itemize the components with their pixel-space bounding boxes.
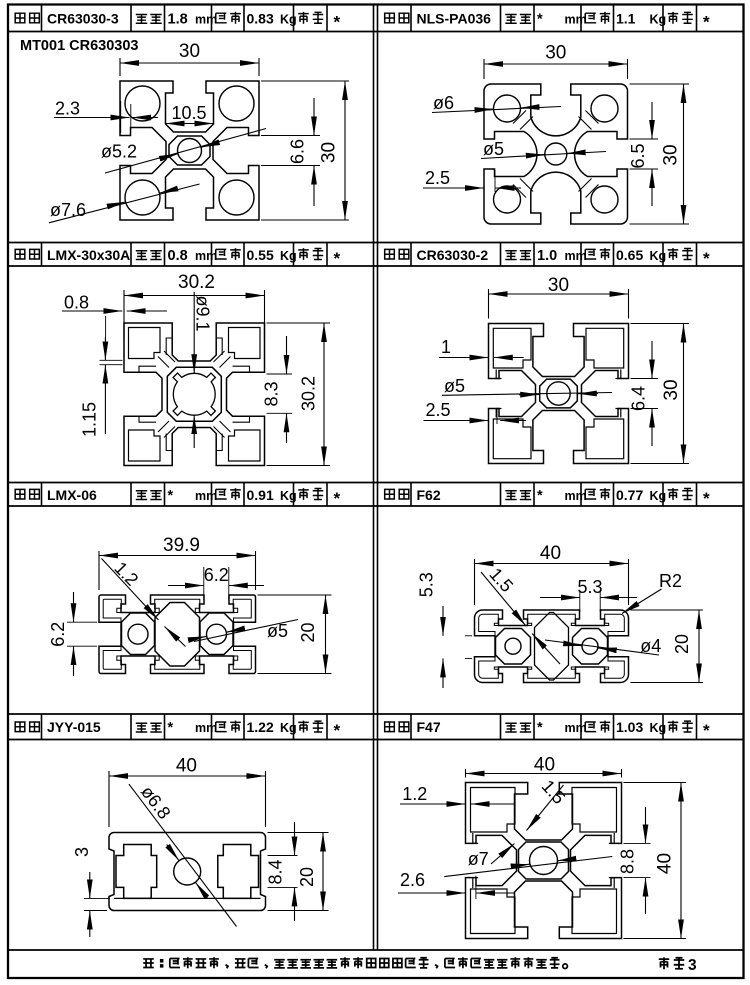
svg-text:40: 40 [540,543,561,564]
svg-text:20: 20 [298,622,318,642]
svg-text:10.5: 10.5 [171,103,206,123]
svg-text:mm: mm [195,13,217,27]
svg-text:*: * [703,721,710,740]
svg-text:Kg: Kg [280,489,297,503]
svg-text:6.4: 6.4 [629,386,649,411]
svg-text:0.77: 0.77 [616,487,643,503]
svg-text:*: * [168,720,174,736]
svg-text:40: 40 [534,755,555,776]
svg-text:*: * [168,488,174,504]
svg-text:30: 30 [319,142,340,163]
svg-text:30.2: 30.2 [178,272,215,293]
svg-text:mm: mm [565,13,587,27]
svg-text:Kg: Kg [650,721,667,735]
svg-text:ø5.2: ø5.2 [101,142,137,162]
svg-text:5.3: 5.3 [417,572,437,597]
svg-text:0.55: 0.55 [247,247,274,263]
svg-text:*: * [334,249,341,268]
svg-text:2.6: 2.6 [400,870,425,890]
svg-text:2.5: 2.5 [426,400,451,420]
svg-text:6.6: 6.6 [288,139,308,164]
svg-text:R2: R2 [659,571,682,591]
svg-text:30: 30 [661,144,682,165]
svg-text:6.2: 6.2 [204,565,229,585]
svg-text:mm: mm [565,721,587,735]
svg-text:LMX-06: LMX-06 [47,487,97,503]
svg-text:Kg: Kg [280,249,297,263]
svg-text:20: 20 [297,867,317,887]
svg-text:*: * [537,488,543,504]
svg-text:*: * [537,12,543,28]
svg-text:*: * [537,720,543,736]
svg-text:MT001 CR630303: MT001 CR630303 [20,38,139,54]
svg-text:1.22: 1.22 [247,719,274,735]
svg-text:0.8: 0.8 [64,293,89,313]
svg-text:2.3: 2.3 [55,99,80,119]
svg-text:*: * [703,249,710,268]
svg-text:30: 30 [545,43,566,64]
svg-text:39.9: 39.9 [163,535,200,556]
svg-text:0.8: 0.8 [168,248,188,264]
svg-text:mm: mm [195,721,217,735]
svg-text:3: 3 [688,957,697,974]
svg-text:40: 40 [655,853,676,874]
svg-text:F47: F47 [417,719,441,735]
svg-text:20: 20 [672,634,692,654]
svg-text:6.5: 6.5 [628,143,648,168]
svg-text:2.5: 2.5 [425,168,450,188]
svg-text:40: 40 [176,756,197,777]
svg-text:1.8: 1.8 [168,12,188,28]
svg-text:ø7.6: ø7.6 [50,200,86,220]
svg-text:*: * [334,721,341,740]
svg-text:ø5: ø5 [444,376,465,396]
svg-text:30.2: 30.2 [299,376,319,411]
svg-text:ø6: ø6 [433,93,454,113]
svg-text:ø9.1: ø9.1 [193,295,213,331]
svg-text:NLS-PA036: NLS-PA036 [417,11,492,27]
svg-text:8.3: 8.3 [262,381,282,406]
svg-text:Kg: Kg [650,249,667,263]
svg-text:F62: F62 [417,487,441,503]
svg-text:*: * [334,13,341,32]
svg-text:30: 30 [548,275,569,296]
svg-text:mm: mm [565,249,587,263]
svg-text:ø7: ø7 [468,849,489,869]
svg-text:JYY-015: JYY-015 [47,719,101,735]
svg-text:Kg: Kg [280,721,297,735]
svg-text:*: * [703,13,710,32]
svg-text:1.1: 1.1 [616,11,636,27]
svg-text:3: 3 [72,847,92,857]
svg-text:*: * [703,489,710,508]
svg-text:mm: mm [195,249,217,263]
svg-text:1.0: 1.0 [537,248,557,264]
svg-text:8.4: 8.4 [266,859,286,884]
svg-text:0.65: 0.65 [616,247,643,263]
svg-text:30: 30 [661,379,682,400]
svg-text:mm: mm [565,489,587,503]
svg-text:1.03: 1.03 [616,719,643,735]
svg-text:0.83: 0.83 [247,11,274,27]
svg-text:*: * [334,489,341,508]
svg-text:8.8: 8.8 [618,849,638,874]
svg-text:Kg: Kg [650,489,667,503]
svg-text:Kg: Kg [280,13,297,27]
svg-text:5.3: 5.3 [577,577,602,597]
svg-text:LMX-30x30A: LMX-30x30A [47,247,130,263]
svg-text:30: 30 [179,41,200,62]
svg-text:1.2: 1.2 [402,784,427,804]
svg-text:CR63030-3: CR63030-3 [47,11,119,27]
svg-text:ø5: ø5 [483,139,504,159]
svg-text:6.2: 6.2 [48,622,68,647]
svg-text:1: 1 [441,337,451,357]
svg-text:mm: mm [195,489,217,503]
svg-text:Kg: Kg [650,13,667,27]
svg-text:1.15: 1.15 [80,402,100,437]
svg-text:CR63030-2: CR63030-2 [417,247,489,263]
svg-text:0.91: 0.91 [247,487,274,503]
